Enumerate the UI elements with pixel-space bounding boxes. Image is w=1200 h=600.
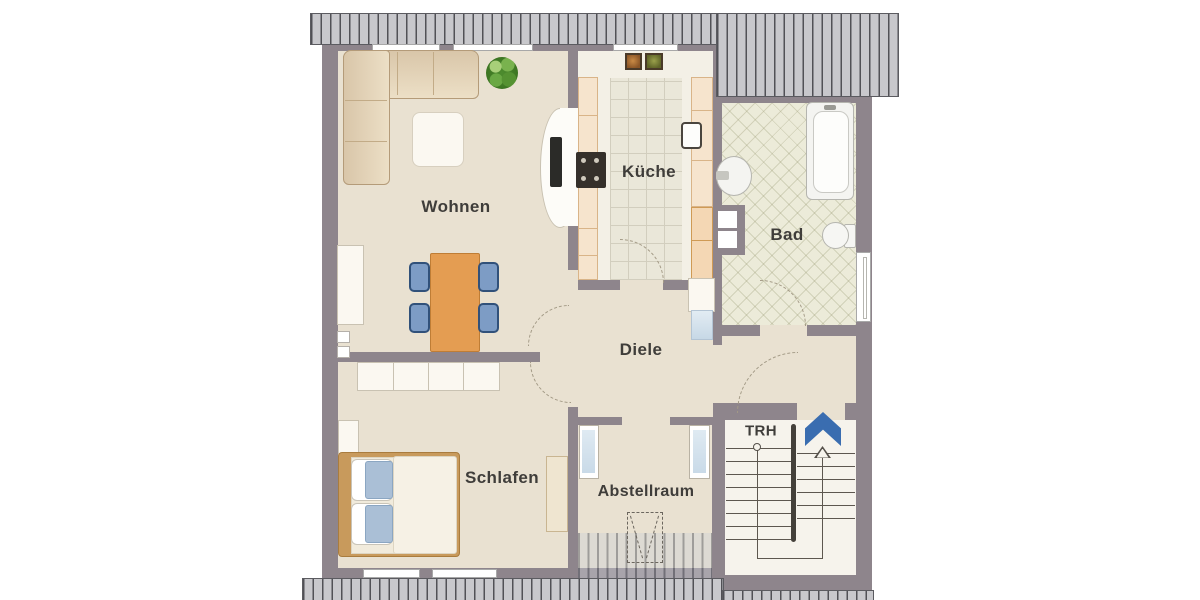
sideboard-divider [428,363,429,390]
stair-step-line [726,513,791,514]
room-label-schlafen: Schlafen [465,468,539,488]
sofa-cushion-line [345,100,387,101]
sofa-chaise [343,50,390,185]
doorway-wohnen [568,270,578,352]
door-glass [693,430,706,473]
window [432,569,497,578]
stair-walk-line [757,450,758,558]
duct-box [718,211,737,228]
stair-step-line [797,466,855,467]
stair-walk-start [753,443,761,451]
burner [581,176,586,181]
room-label-kueche: Küche [622,162,676,182]
sofa-cushion-line [433,52,434,95]
counter-line [579,255,597,256]
sofa-cushion-line [397,52,398,95]
chair [478,303,499,333]
bathtub-basin [813,111,849,193]
coffee-table [412,112,464,167]
burner [581,158,586,163]
bed [338,452,460,557]
stair-step-line [726,526,791,527]
wall-art [645,53,663,70]
duct-box [718,231,737,248]
stair-step-line [797,479,855,480]
room-label-abstellraum: Abstellraum [598,483,695,501]
wardrobe [546,456,568,532]
stair-step-line [726,474,791,475]
hall-cabinet [688,278,715,312]
plant [486,57,518,89]
roof-hatch-top-right [716,13,899,97]
stove [576,152,606,188]
faucet [824,105,836,110]
stair-handrail [791,424,796,542]
door-panel [689,425,710,479]
skylight-outline [627,512,663,563]
counter-line [579,228,597,229]
hall-mirror-panel [691,310,713,340]
duct-box [337,346,350,358]
doorway-abstellraum [622,417,670,425]
room-label-diele: Diele [620,340,663,360]
room-label-bad: Bad [770,225,803,245]
skylight-line [646,516,659,559]
floor-plan: Wohnen Küche Bad Diele Schlafen Abstellr… [0,0,1200,600]
chair [409,303,430,333]
counter-line [692,160,712,161]
duct-box [337,331,350,343]
wall-art [625,53,642,70]
stair-step-line [726,461,791,462]
stair-walk-line [757,558,823,559]
sideboard-divider [463,363,464,390]
shelf-cabinet [337,245,364,325]
tv [550,137,562,187]
counter-line [692,110,712,111]
stair-step-line [726,487,791,488]
chair [478,262,499,292]
duvet [393,456,457,554]
counter-line [579,115,597,116]
roof-hatch-bottom-right [722,590,874,600]
door-glass [582,430,595,473]
window-frame-line [863,257,867,319]
room-label-trh: TRH [745,423,777,440]
stair-step-line [726,539,791,540]
faucet [716,171,729,180]
bathtub [806,102,854,200]
burner [594,158,599,163]
doorway-bad [760,325,807,336]
door-panel [579,425,599,479]
roof-hatch-top-left [310,13,718,45]
diele-passage-bad [713,345,722,403]
kitchen-cabinet-lower [691,207,713,280]
stair-step-line [797,518,855,519]
skylight-line [630,516,643,559]
kitchen-sink [681,122,702,149]
stair-step-line [797,505,855,506]
window [613,44,678,51]
burner [594,176,599,181]
sofa-cushion-line [345,141,387,142]
dining-table [430,253,480,352]
window [363,569,420,578]
nightstand [338,420,359,454]
sideboard [357,362,500,391]
toilet [822,222,849,249]
pillow-blue [365,461,393,499]
sideboard-divider [393,363,394,390]
room-label-wohnen: Wohnen [421,197,490,217]
window-bad [856,252,871,322]
chair [409,262,430,292]
stair-step-line [797,492,855,493]
counter-line [692,240,712,241]
stair-step-line [726,500,791,501]
stair-walk-line [822,456,823,559]
roof-hatch-bottom [302,578,724,600]
pillow-blue [365,505,393,543]
